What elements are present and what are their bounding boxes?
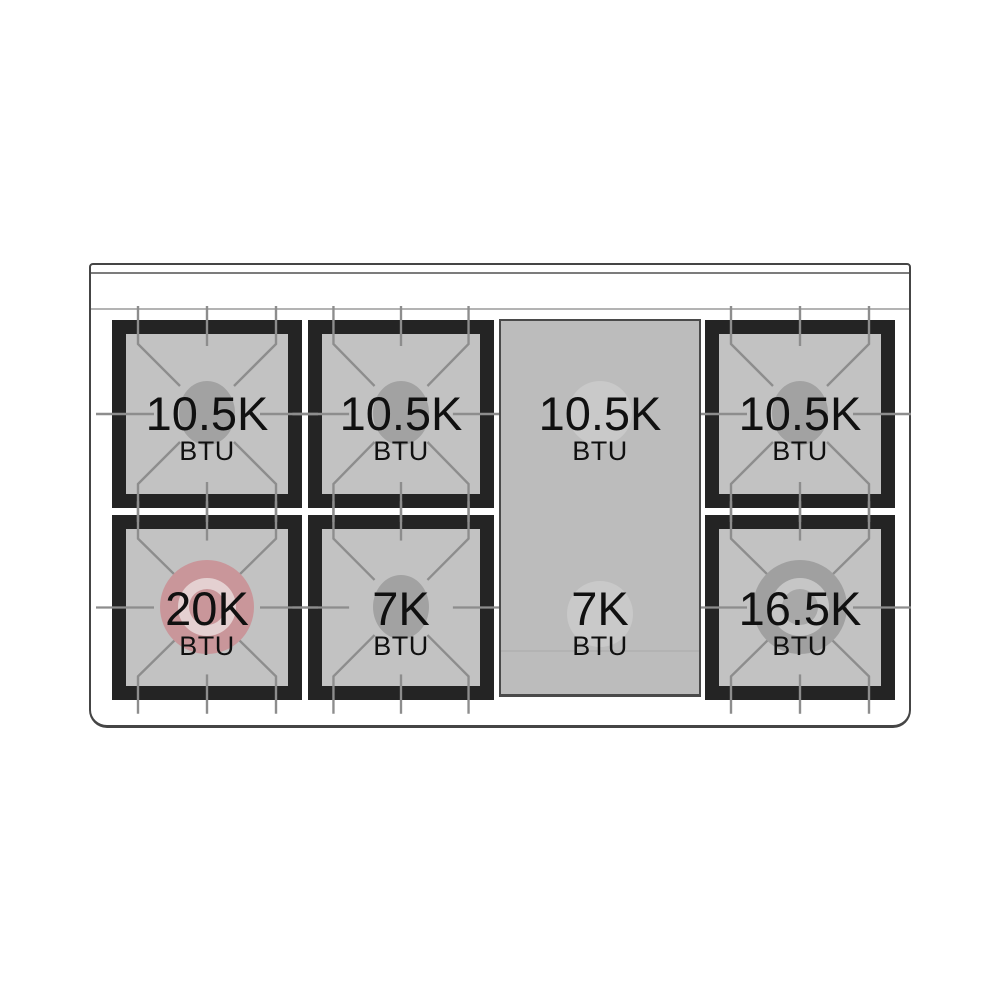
back-edge-line [91,308,909,310]
btu-unit: BTU [481,438,719,465]
btu-unit: BTU [685,438,915,465]
btu-unit: BTU [481,633,719,660]
griddle-burner-bottom-label: 7K BTU [481,585,719,660]
burner-label: 10.5K BTU [685,390,915,465]
btu-value: 10.5K [481,390,719,437]
btu-value: 7K [481,585,719,632]
griddle-plate: 10.5K BTU 7K BTU [499,319,701,697]
burner-bottom-left: 20K BTU [112,515,302,700]
btu-value: 10.5K [685,390,915,437]
btu-value: 16.5K [685,585,915,632]
burner-top-center-left: 10.5K BTU [308,320,494,508]
btu-unit: BTU [685,633,915,660]
burner-top-right: 10.5K BTU [705,320,895,508]
burner-label: 16.5K BTU [685,585,915,660]
range-top-surface: 10.5K BTU 10.5K BTU [89,263,911,728]
burner-bottom-center-left: 7K BTU [308,515,494,700]
burner-top-left: 10.5K BTU [112,320,302,508]
back-trim-line [91,272,909,274]
griddle-burner-top-label: 10.5K BTU [481,390,719,465]
burner-bottom-right: 16.5K BTU [705,515,895,700]
cooktop-diagram: 10.5K BTU 10.5K BTU [0,0,1000,1000]
